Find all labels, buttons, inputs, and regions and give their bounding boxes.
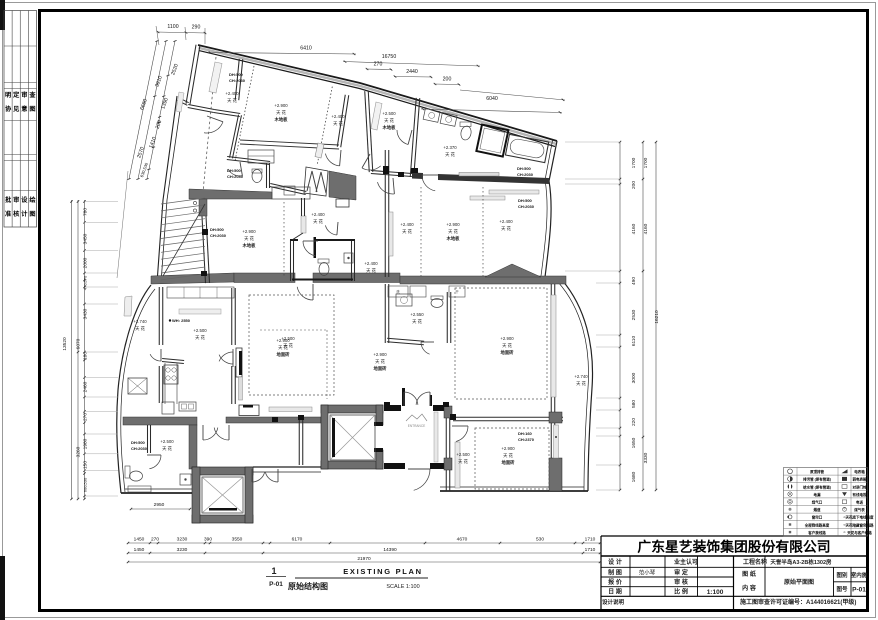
svg-text:+2.900: +2.900 [276,338,290,343]
svg-text:室内施: 室内施 [851,571,868,579]
svg-text:+2.740: +2.740 [574,374,588,379]
svg-text:1100: 1100 [167,24,178,30]
svg-text:天 花: 天 花 [576,380,586,387]
svg-text:SCALE 1:100: SCALE 1:100 [386,584,419,590]
svg-text:图号: 图号 [836,585,848,593]
svg-text:天 花: 天 花 [276,109,286,116]
svg-text:CH:2030: CH:2030 [131,446,148,451]
svg-text:+2.400: +2.400 [400,222,414,227]
svg-text:270: 270 [83,413,89,421]
svg-text:图别: 图别 [836,571,848,579]
svg-text:图: 图 [29,105,35,113]
svg-text:+2.550: +2.550 [410,312,424,317]
svg-text:490: 490 [631,277,637,285]
svg-text:准: 准 [5,210,12,218]
svg-text:+2.400: +2.400 [331,114,345,119]
svg-text:3550: 3550 [232,537,243,543]
svg-text:审 定: 审 定 [674,569,688,577]
svg-text:核: 核 [13,210,20,218]
svg-text:设计说明: 设计说明 [602,598,625,606]
svg-text:DH:500: DH:500 [517,166,532,171]
svg-text:计: 计 [21,210,28,218]
svg-text:1: 1 [271,566,276,576]
svg-text:P-01: P-01 [852,587,866,594]
svg-text:洗: 洗 [396,289,400,294]
svg-text:业主认可: 业主认可 [674,558,698,566]
svg-text:天花与客户线路: 天花与客户线路 [847,530,872,535]
svg-text:6070: 6070 [76,338,82,349]
svg-text:1700: 1700 [643,157,649,168]
svg-text:施工图审查许可证编号：A144016621(甲级): 施工图审查许可证编号：A144016621(甲级) [740,598,856,606]
svg-text:地面砖: 地面砖 [277,351,291,358]
svg-text:明: 明 [5,91,11,99]
svg-text:580: 580 [631,400,637,408]
svg-text:3450: 3450 [83,233,89,244]
svg-text:+2.500: +2.500 [193,328,207,333]
svg-text:对讲门铃: 对讲门铃 [853,484,867,489]
svg-text:DH:500: DH:500 [229,72,244,77]
svg-text:16210: 16210 [654,310,660,324]
svg-text:协: 协 [5,105,12,113]
svg-text:CH:2030: CH:2030 [229,78,246,83]
svg-text:+2.900: +2.900 [501,446,515,451]
svg-text:200: 200 [631,181,637,189]
svg-text:+2.900: +2.900 [242,229,256,234]
svg-text:天 花: 天 花 [402,228,412,235]
svg-text:日 期: 日 期 [608,588,622,596]
svg-text:干: 干 [455,290,459,294]
svg-text:1710: 1710 [585,547,596,553]
svg-text:天花暗藏窗帘线路: 天花暗藏窗帘线路 [846,522,874,527]
svg-text:CH:2030: CH:2030 [517,172,534,177]
svg-text:530: 530 [536,537,544,543]
svg-text:木地板: 木地板 [274,116,289,123]
svg-text:定: 定 [13,91,20,99]
svg-text:广东星艺装饰集团股份有限公司: 广东星艺装饰集团股份有限公司 [637,539,830,555]
svg-text:窗帘口: 窗帘口 [812,515,823,520]
svg-text:+2.500: +2.500 [160,439,174,444]
svg-text:220: 220 [631,418,637,426]
svg-text:EXISTING PLAN: EXISTING PLAN [343,567,423,576]
svg-text:3430: 3430 [83,308,89,319]
svg-text:工程名称: 工程名称 [743,558,767,566]
svg-text:全屋我线路高度: 全屋我线路高度 [804,522,830,527]
svg-text:天 花: 天 花 [384,117,394,124]
svg-text:天 花: 天 花 [501,225,511,232]
svg-text:电话: 电话 [856,500,864,505]
svg-text:6410: 6410 [300,46,312,52]
svg-text:780: 780 [83,208,89,216]
svg-text:470,670: 470,670 [83,275,88,290]
svg-text:+2.900: +2.900 [500,336,514,341]
svg-text:1450: 1450 [134,537,145,543]
svg-text:原始平面图: 原始平面图 [784,578,814,586]
svg-text:天 花: 天 花 [503,452,513,459]
svg-text:290: 290 [192,25,201,31]
svg-text:有线电视: 有线电视 [853,492,867,497]
svg-text:14390: 14390 [383,547,397,553]
svg-text:180: 180 [83,352,89,360]
svg-text:1700: 1700 [631,157,637,168]
svg-text:6170: 6170 [292,537,303,543]
svg-text:审: 审 [13,196,19,204]
svg-text:天花底下电线高度: 天花底下电线高度 [846,515,874,520]
svg-text:2440: 2440 [406,69,418,75]
svg-text:地面砖: 地面砖 [502,459,516,466]
svg-text:4160: 4160 [643,223,649,234]
svg-text:+2.370: +2.370 [443,145,457,150]
svg-text:图: 图 [29,210,35,218]
svg-text:天 花: 天 花 [313,218,323,225]
svg-text:弱电表箱: 弱电表箱 [853,477,867,482]
svg-text:DH:500: DH:500 [518,198,533,203]
svg-text:查: 查 [28,91,36,99]
svg-text:1980: 1980 [83,438,89,449]
svg-text:+2.900: +2.900 [373,352,387,357]
svg-text:天 花: 天 花 [445,151,455,158]
svg-text:1:100: 1:100 [707,589,724,596]
svg-text:6110: 6110 [631,336,637,347]
svg-text:审: 审 [21,91,27,99]
svg-text:3260: 3260 [76,446,82,457]
svg-text:客户我线路: 客户我线路 [807,530,826,535]
svg-text:天 花: 天 花 [375,358,385,365]
svg-text:煤气表: 煤气表 [854,507,865,512]
svg-text:报 价: 报 价 [608,578,623,586]
svg-text:+2.900: +2.900 [274,103,288,108]
svg-text:+2.400: +2.400 [225,91,239,96]
svg-text:4160: 4160 [631,223,637,234]
svg-text:范小琴: 范小琴 [639,569,656,577]
svg-text:1710: 1710 [585,537,596,543]
svg-text:地漏: 地漏 [814,492,822,497]
svg-text:天 花: 天 花 [366,267,376,274]
svg-text:地面砖: 地面砖 [374,365,388,372]
svg-text:600,530: 600,530 [83,477,88,492]
svg-text:WH: 2550: WH: 2550 [172,318,191,323]
svg-text:1680: 1680 [631,471,637,482]
svg-text:木地板: 木地板 [446,235,461,242]
svg-text:排污管 (原有管道): 排污管 (原有管道) [803,477,831,482]
svg-text:+2.400: +2.400 [364,261,378,266]
svg-text:2950: 2950 [154,502,165,508]
svg-text:原始结构图: 原始结构图 [288,581,328,591]
svg-text:200: 200 [443,77,452,83]
svg-text:+2.500: +2.500 [456,452,470,457]
svg-text:批: 批 [5,196,12,204]
svg-text:DH:160: DH:160 [518,431,533,436]
svg-text:ENTRANCE: ENTRANCE [408,424,426,428]
svg-text:天 花: 天 花 [244,235,254,242]
svg-text:地面砖: 地面砖 [501,349,515,356]
svg-text:天 花: 天 花 [278,344,288,351]
svg-text:设: 设 [21,196,28,204]
svg-text:煤气口: 煤气口 [812,500,823,505]
svg-text:2530: 2530 [631,309,637,320]
svg-text:2000: 2000 [83,257,89,268]
svg-text:见: 见 [13,105,19,113]
svg-text:内 容: 内 容 [742,584,756,592]
svg-text:¤: ¤ [844,531,846,535]
svg-text:+2.400: +2.400 [311,212,325,217]
svg-text:审 核: 审 核 [674,578,688,586]
svg-text:图 纸: 图 纸 [742,570,756,578]
svg-text:给水管 (原有管道): 给水管 (原有管道) [803,484,831,489]
svg-text:CH:2030: CH:2030 [518,204,535,209]
svg-text:270: 270 [151,537,159,543]
svg-text:DH:500: DH:500 [227,168,242,173]
svg-text:木地板: 木地板 [382,124,397,131]
svg-text:DH:500: DH:500 [131,440,146,445]
svg-text:+2.740: +2.740 [133,319,147,324]
svg-text:2460: 2460 [83,381,89,392]
svg-text:天 花: 天 花 [458,458,468,465]
svg-text:1650: 1650 [631,437,637,448]
svg-text:DH:500: DH:500 [210,227,225,232]
svg-text:+2.400: +2.400 [499,219,513,224]
svg-text:烟道: 烟道 [814,507,822,512]
svg-text:电表箱: 电表箱 [854,469,865,474]
svg-text:4670: 4670 [457,537,468,543]
svg-text:CH:2030: CH:2030 [210,233,227,238]
svg-text:CH:2030: CH:2030 [227,174,244,179]
svg-text:意: 意 [21,105,27,113]
svg-text:150: 150 [83,461,89,469]
svg-text:绘: 绘 [29,196,36,204]
svg-text:6040: 6040 [486,96,498,102]
svg-text:比 例: 比 例 [674,588,688,596]
svg-text:3230: 3230 [177,547,188,553]
svg-text:天 花: 天 花 [502,342,512,349]
svg-text:设 计: 设 计 [608,558,622,566]
svg-text:天 花: 天 花 [162,445,172,452]
svg-text:13520: 13520 [62,337,68,351]
svg-text:天 花: 天 花 [195,334,205,341]
svg-text:天誉半岛A3-2B栋1302房: 天誉半岛A3-2B栋1302房 [770,558,832,566]
svg-text:+2.900: +2.900 [446,222,460,227]
svg-text:天 花: 天 花 [135,325,145,332]
svg-text:原顶排管: 原顶排管 [810,469,824,474]
svg-text:3000: 3000 [631,372,637,383]
svg-text:P-01: P-01 [269,581,283,588]
svg-text:天 花: 天 花 [227,97,237,104]
svg-text:制 图: 制 图 [608,569,622,577]
svg-text:21970: 21970 [357,556,371,562]
svg-text:270: 270 [374,62,383,68]
svg-text:16750: 16750 [382,54,397,60]
svg-text:木地板: 木地板 [242,242,257,249]
svg-text:+2.500: +2.500 [382,111,396,116]
svg-text:天 花: 天 花 [412,318,422,325]
svg-text:CH:2370: CH:2370 [518,437,535,442]
svg-text:3330: 3330 [643,452,649,463]
svg-text:3230: 3230 [177,537,188,543]
svg-text:1450: 1450 [134,547,145,553]
svg-text:天 花: 天 花 [448,228,458,235]
svg-text:天 花: 天 花 [333,120,343,127]
svg-text:390: 390 [204,537,212,543]
